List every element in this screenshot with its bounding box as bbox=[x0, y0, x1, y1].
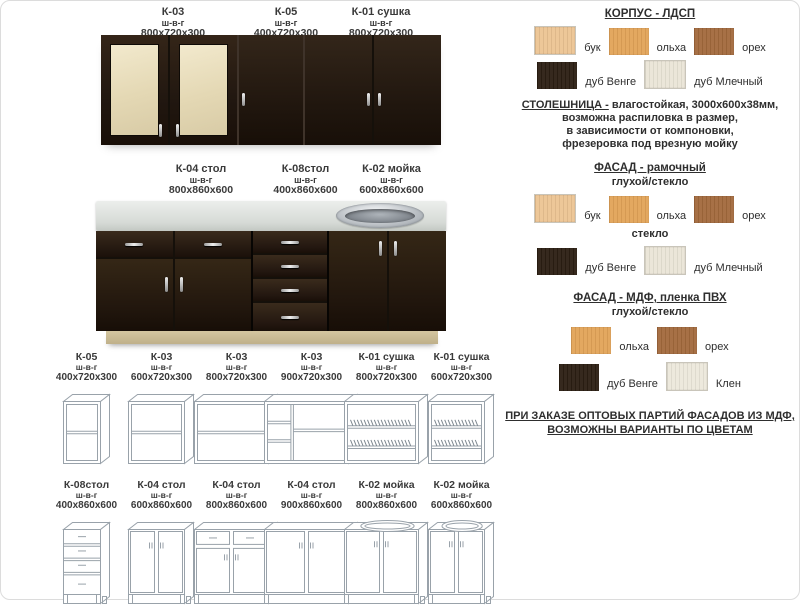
wire-item-label: К-01 сушкаш-в-г600х720х300 bbox=[431, 351, 492, 387]
material-swatch-label: дуб Венге bbox=[585, 262, 636, 275]
cabinet-line-drawing-drawer-stack bbox=[62, 521, 112, 606]
drawer-handle bbox=[281, 316, 299, 319]
fasad-frame-subtitle: глухой/стекло bbox=[505, 175, 795, 189]
material-swatch-label: орех bbox=[742, 42, 766, 55]
materials-panel: КОРПУС - ЛДСП букольхаорех дуб Венгедуб … bbox=[505, 7, 795, 437]
wire-item-dims: 600х720х300 bbox=[131, 372, 192, 383]
fasad-mdf-swatch-row-2: дуб ВенгеКлен bbox=[505, 362, 795, 391]
wire-item-К-02-мойка: К-02 мойкаш-в-г600х860х600 bbox=[424, 479, 499, 606]
fasad-frame-swatch-row-2: дуб Венгедуб Млечный bbox=[505, 246, 795, 275]
wireframe-row-base: К-08столш-в-г400х860х600К-04 столш-в-г60… bbox=[49, 479, 501, 606]
cabinet-door bbox=[374, 35, 441, 145]
wire-item-К-02-мойка: К-02 мойкаш-в-г800х860х600 bbox=[349, 479, 424, 606]
door-handle bbox=[180, 277, 183, 292]
cabinet-line-drawing-dish-rack bbox=[343, 393, 430, 466]
cabinet-line-drawing-sink-doors bbox=[343, 521, 430, 606]
material-swatch-label: дуб Млечный bbox=[694, 262, 763, 275]
base-cabinet-fronts bbox=[96, 231, 446, 331]
dims-key: ш-в-г bbox=[431, 363, 492, 372]
wire-item-dims: 900х720х300 bbox=[281, 372, 342, 383]
material-swatch-label: дуб Венге bbox=[607, 378, 658, 391]
base-cabinet-label-1: К-04 стол ш-в-г 800х860х600 bbox=[146, 163, 256, 196]
material-swatch-label: ольха bbox=[619, 341, 649, 354]
wire-item-label: К-05ш-в-г400х720х300 bbox=[56, 351, 117, 387]
dims-key: ш-в-г bbox=[56, 363, 117, 372]
material-swatch-label: бук bbox=[584, 42, 600, 55]
door-handle bbox=[367, 93, 370, 106]
dims-key: ш-в-г bbox=[206, 491, 267, 500]
frosted-glass-pane bbox=[110, 44, 159, 136]
frosted-glass-pane bbox=[179, 44, 228, 136]
wire-item-label: К-04 столш-в-г600х860х600 bbox=[131, 479, 192, 515]
drawer-handle bbox=[125, 243, 143, 246]
door-handle bbox=[378, 93, 381, 106]
material-swatch-дуб-Млечный bbox=[644, 246, 686, 275]
material-swatch-бук bbox=[534, 194, 576, 223]
door-handle bbox=[165, 277, 168, 292]
fasad-frame-swatch-row-1: букольхаорех bbox=[505, 194, 795, 223]
material-swatch-орех bbox=[657, 327, 697, 354]
material-swatch-ольха bbox=[609, 196, 649, 223]
double-door-cabinet bbox=[303, 35, 441, 145]
dims-key: ш-в-г bbox=[356, 491, 417, 500]
wire-item-К-08стол: К-08столш-в-г400х860х600 bbox=[49, 479, 124, 606]
door-handle bbox=[176, 124, 179, 137]
dims-key: ш-в-г bbox=[131, 363, 192, 372]
cabinet-door bbox=[389, 231, 447, 331]
plinth bbox=[106, 331, 438, 344]
cabinet-line-drawing-sink-doors bbox=[427, 521, 496, 606]
wire-item-label: К-03ш-в-г900х720х300 bbox=[281, 351, 342, 387]
note-line-2: ВОЗМОЖНЫ ВАРИАНТЫ ПО ЦВЕТАМ bbox=[505, 423, 795, 437]
material-swatch-ольха bbox=[609, 28, 649, 55]
door-pair bbox=[96, 259, 251, 331]
wire-item-К-01-сушка: К-01 сушкаш-в-г800х720х300 bbox=[349, 351, 424, 466]
table-cabinet-800 bbox=[96, 231, 251, 331]
drawer-front bbox=[253, 231, 327, 253]
wire-item-dims: 600х860х600 bbox=[431, 500, 492, 511]
material-swatch-label: орех bbox=[742, 210, 766, 223]
cabinet-line-drawing-double-doors bbox=[127, 521, 196, 606]
countertop-line2: возможна распиловка в размер, bbox=[562, 112, 738, 124]
wire-item-dims: 800х720х300 bbox=[206, 372, 267, 383]
cabinet-door bbox=[329, 231, 387, 331]
dims-key: ш-в-г bbox=[431, 491, 492, 500]
catalog-page: К-03 ш-в-г 800х720х300 К-05 ш-в-г 400х72… bbox=[0, 0, 800, 600]
door-handle bbox=[159, 124, 162, 137]
wireframe-row-upper: К-05ш-в-г400х720х300К-03ш-в-г600х720х300… bbox=[49, 351, 501, 466]
countertop-line3: в зависимости от компоновки, bbox=[566, 125, 733, 137]
sink-basin bbox=[345, 209, 415, 223]
cabinet-dims: 800х860х600 bbox=[146, 185, 256, 196]
cabinet-dims: 600х860х600 bbox=[339, 185, 444, 196]
wire-item-dims: 600х860х600 bbox=[131, 500, 192, 511]
material-swatch-ольха bbox=[571, 327, 611, 354]
drawer-row bbox=[96, 231, 251, 257]
drawer-front bbox=[96, 231, 173, 257]
countertop-line1: влагостойкая, 3000х600х38мм, bbox=[609, 99, 778, 111]
glass-door bbox=[170, 35, 237, 145]
material-swatch-label: ольха bbox=[657, 42, 687, 55]
wire-item-dims: 800х860х600 bbox=[206, 500, 267, 511]
wire-item-label: К-04 столш-в-г900х860х600 bbox=[281, 479, 342, 515]
cabinet-door bbox=[96, 259, 173, 331]
base-cabinets-photo bbox=[96, 201, 446, 344]
cabinet-code: К-04 стол bbox=[146, 163, 256, 175]
dims-key: ш-в-г bbox=[56, 491, 117, 500]
wire-item-dims: 600х720х300 bbox=[431, 372, 492, 383]
wire-item-dims: 400х860х600 bbox=[56, 500, 117, 511]
material-swatch-label: дуб Венге bbox=[585, 76, 636, 89]
wire-item-label: К-04 столш-в-г800х860х600 bbox=[206, 479, 267, 515]
door-handle bbox=[394, 241, 397, 256]
wire-item-label: К-03ш-в-г800х720х300 bbox=[206, 351, 267, 387]
upper-cabinets-photo bbox=[101, 35, 441, 145]
glass-label: стекло bbox=[505, 227, 795, 241]
door-handle bbox=[242, 93, 245, 106]
cabinet-door bbox=[305, 35, 372, 145]
material-swatch-дуб-Млечный bbox=[644, 60, 686, 89]
drawer-front bbox=[253, 279, 327, 301]
korpus-swatch-row-1: букольхаорех bbox=[505, 26, 795, 55]
countertop bbox=[96, 201, 446, 231]
material-swatch-бук bbox=[534, 26, 576, 55]
countertop-line4: фрезеровка под врезную мойку bbox=[562, 138, 737, 150]
drawer-handle bbox=[281, 265, 299, 268]
dims-key: ш-в-г bbox=[281, 491, 342, 500]
wire-item-К-01-сушка: К-01 сушкаш-в-г600х720х300 bbox=[424, 351, 499, 466]
material-swatch-дуб-Венге bbox=[559, 364, 599, 391]
drawer-handle bbox=[281, 241, 299, 244]
sink-bowl bbox=[336, 203, 424, 228]
sink-cabinet-600 bbox=[329, 231, 446, 331]
wire-item-label: К-02 мойкаш-в-г600х860х600 bbox=[431, 479, 492, 515]
wire-item-label: К-08столш-в-г400х860х600 bbox=[56, 479, 117, 515]
cabinet-door bbox=[175, 259, 252, 331]
cabinet-line-drawing-shelf-box bbox=[62, 393, 112, 466]
material-swatch-орех bbox=[694, 28, 734, 55]
door-handle bbox=[379, 241, 382, 256]
drawer-front bbox=[253, 255, 327, 277]
wire-item-К-04-стол: К-04 столш-в-г900х860х600 bbox=[274, 479, 349, 606]
wire-item-К-03: К-03ш-в-г900х720х300 bbox=[274, 351, 349, 466]
material-swatch-орех bbox=[694, 196, 734, 223]
drawer-handle bbox=[281, 289, 299, 292]
material-swatch-label: ольха bbox=[657, 210, 687, 223]
dims-key: ш-в-г bbox=[206, 363, 267, 372]
drawer-handle bbox=[204, 243, 222, 246]
dims-key: ш-в-г bbox=[131, 491, 192, 500]
glass-door bbox=[101, 35, 168, 145]
material-swatch-label: орех bbox=[705, 341, 729, 354]
fasad-frame-heading: ФАСАД - рамочный bbox=[505, 161, 795, 175]
korpus-heading: КОРПУС - ЛДСП bbox=[505, 7, 795, 21]
wire-item-dims: 800х860х600 bbox=[356, 500, 417, 511]
korpus-swatch-row-2: дуб Венгедуб Млечный bbox=[505, 60, 795, 89]
wire-item-dims: 400х720х300 bbox=[56, 372, 117, 383]
cabinet-code: К-02 мойка bbox=[339, 163, 444, 175]
wire-item-dims: 800х720х300 bbox=[356, 372, 417, 383]
base-cabinet-label-3: К-02 мойка ш-в-г 600х860х600 bbox=[339, 163, 444, 196]
wholesale-note: ПРИ ЗАКАЗЕ ОПТОВЫХ ПАРТИЙ ФАСАДОВ ИЗ МДФ… bbox=[505, 409, 795, 437]
dims-key: ш-в-г bbox=[281, 363, 342, 372]
material-swatch-label: Клен bbox=[716, 378, 741, 391]
fasad-mdf-heading: ФАСАД - МДФ, пленка ПВХ bbox=[505, 291, 795, 305]
wire-item-label: К-02 мойкаш-в-г800х860х600 bbox=[356, 479, 417, 515]
dims-key: ш-в-г bbox=[356, 363, 417, 372]
note-line-1: ПРИ ЗАКАЗЕ ОПТОВЫХ ПАРТИЙ ФАСАДОВ ИЗ МДФ… bbox=[505, 409, 795, 423]
cabinet-code: К-01 сушка bbox=[321, 6, 441, 18]
material-swatch-label: дуб Млечный bbox=[694, 76, 763, 89]
material-swatch-label: бук bbox=[584, 210, 600, 223]
countertop-spec: СТОЛЕШНИЦА - влагостойкая, 3000х600х38мм… bbox=[505, 99, 795, 151]
single-door-cabinet bbox=[237, 35, 303, 145]
material-swatch-Клен bbox=[666, 362, 708, 391]
glass-cabinet bbox=[101, 35, 237, 145]
wire-item-dims: 900х860х600 bbox=[281, 500, 342, 511]
wire-item-label: К-03ш-в-г600х720х300 bbox=[131, 351, 192, 387]
material-swatch-дуб-Венге bbox=[537, 248, 577, 275]
wire-item-К-04-стол: К-04 столш-в-г600х860х600 bbox=[124, 479, 199, 606]
cabinet-line-drawing-shelf-box bbox=[127, 393, 196, 466]
drawer-front bbox=[253, 303, 327, 331]
wire-item-К-03: К-03ш-в-г600х720х300 bbox=[124, 351, 199, 466]
fasad-mdf-swatch-row-1: ольхаорех bbox=[505, 327, 795, 354]
countertop-heading: СТОЛЕШНИЦА - bbox=[522, 99, 609, 111]
drawer-front bbox=[175, 231, 252, 257]
drawer-cabinet-400 bbox=[251, 231, 329, 331]
wire-item-label: К-01 сушкаш-в-г800х720х300 bbox=[356, 351, 417, 387]
cabinet-line-drawing-dish-rack bbox=[427, 393, 496, 466]
wire-item-К-05: К-05ш-в-г400х720х300 bbox=[49, 351, 124, 466]
cabinet-code: К-03 bbox=[113, 6, 233, 18]
fasad-mdf-subtitle: глухой/стекло bbox=[505, 305, 795, 319]
material-swatch-дуб-Венге bbox=[537, 62, 577, 89]
